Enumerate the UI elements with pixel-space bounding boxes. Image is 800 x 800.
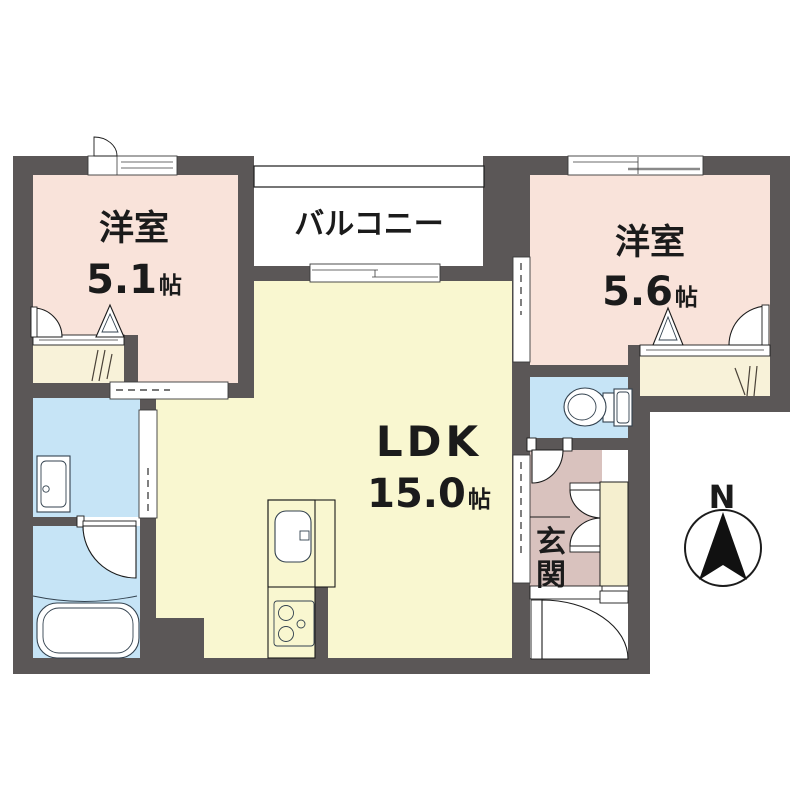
floor-plan-page: 洋室 5.1帖 洋室 5.6帖 バルコニー LDK 15.0帖 玄 関 N xyxy=(0,0,800,800)
wall-kitchen-stub xyxy=(315,587,328,658)
bedroom-left-label: 洋室 xyxy=(99,208,169,249)
wall-bottom-outer xyxy=(13,658,650,674)
slider-washroom-entry xyxy=(139,410,157,518)
compass: N xyxy=(685,478,761,586)
bathtub-icon xyxy=(33,596,139,658)
closet-right-floor xyxy=(640,356,770,396)
entrance-door-leaf xyxy=(531,600,542,659)
casement-window-icon xyxy=(94,137,117,156)
balcony-label: バルコニー xyxy=(294,207,443,242)
window-bedroom-left xyxy=(88,156,177,175)
kitchen-sink-icon xyxy=(275,511,311,562)
wall-right-outer-upper xyxy=(770,156,790,412)
floor-plan: 洋室 5.1帖 洋室 5.6帖 バルコニー LDK 15.0帖 玄 関 N xyxy=(0,0,800,800)
window-bedroom-right xyxy=(568,156,703,175)
bedroom-right-label: 洋室 xyxy=(615,222,685,263)
slider-bedroom-right-entry xyxy=(513,257,530,362)
wall-bottom-left-block xyxy=(140,618,204,658)
wall-balcony-right-block xyxy=(483,156,530,268)
washbasin-icon xyxy=(37,456,70,512)
entrance-step xyxy=(600,591,628,603)
entrance-label-char2: 関 xyxy=(536,558,566,593)
closet-left-door-leaf xyxy=(31,307,37,337)
wall-toilet-top xyxy=(512,365,630,377)
toilet-door-post xyxy=(527,438,536,451)
ldk-label: LDK xyxy=(376,417,482,466)
balcony-railing xyxy=(254,166,484,187)
entrance-door-swing-icon xyxy=(542,600,628,659)
entrance-label-char1: 玄 xyxy=(536,525,566,560)
wall-washroom-bathroom xyxy=(33,517,83,526)
balcony-railing-band xyxy=(254,166,484,187)
toilet-icon xyxy=(564,388,632,426)
wall-right-outer-lower xyxy=(628,412,650,674)
toilet-door-post xyxy=(563,438,572,451)
wall-closet-right-bottom xyxy=(630,396,790,412)
closet-right-door-leaf xyxy=(762,305,769,345)
closet-right-top-bar xyxy=(640,345,770,356)
shoe-cabinet xyxy=(600,482,628,586)
wall-left-outer xyxy=(13,156,33,674)
